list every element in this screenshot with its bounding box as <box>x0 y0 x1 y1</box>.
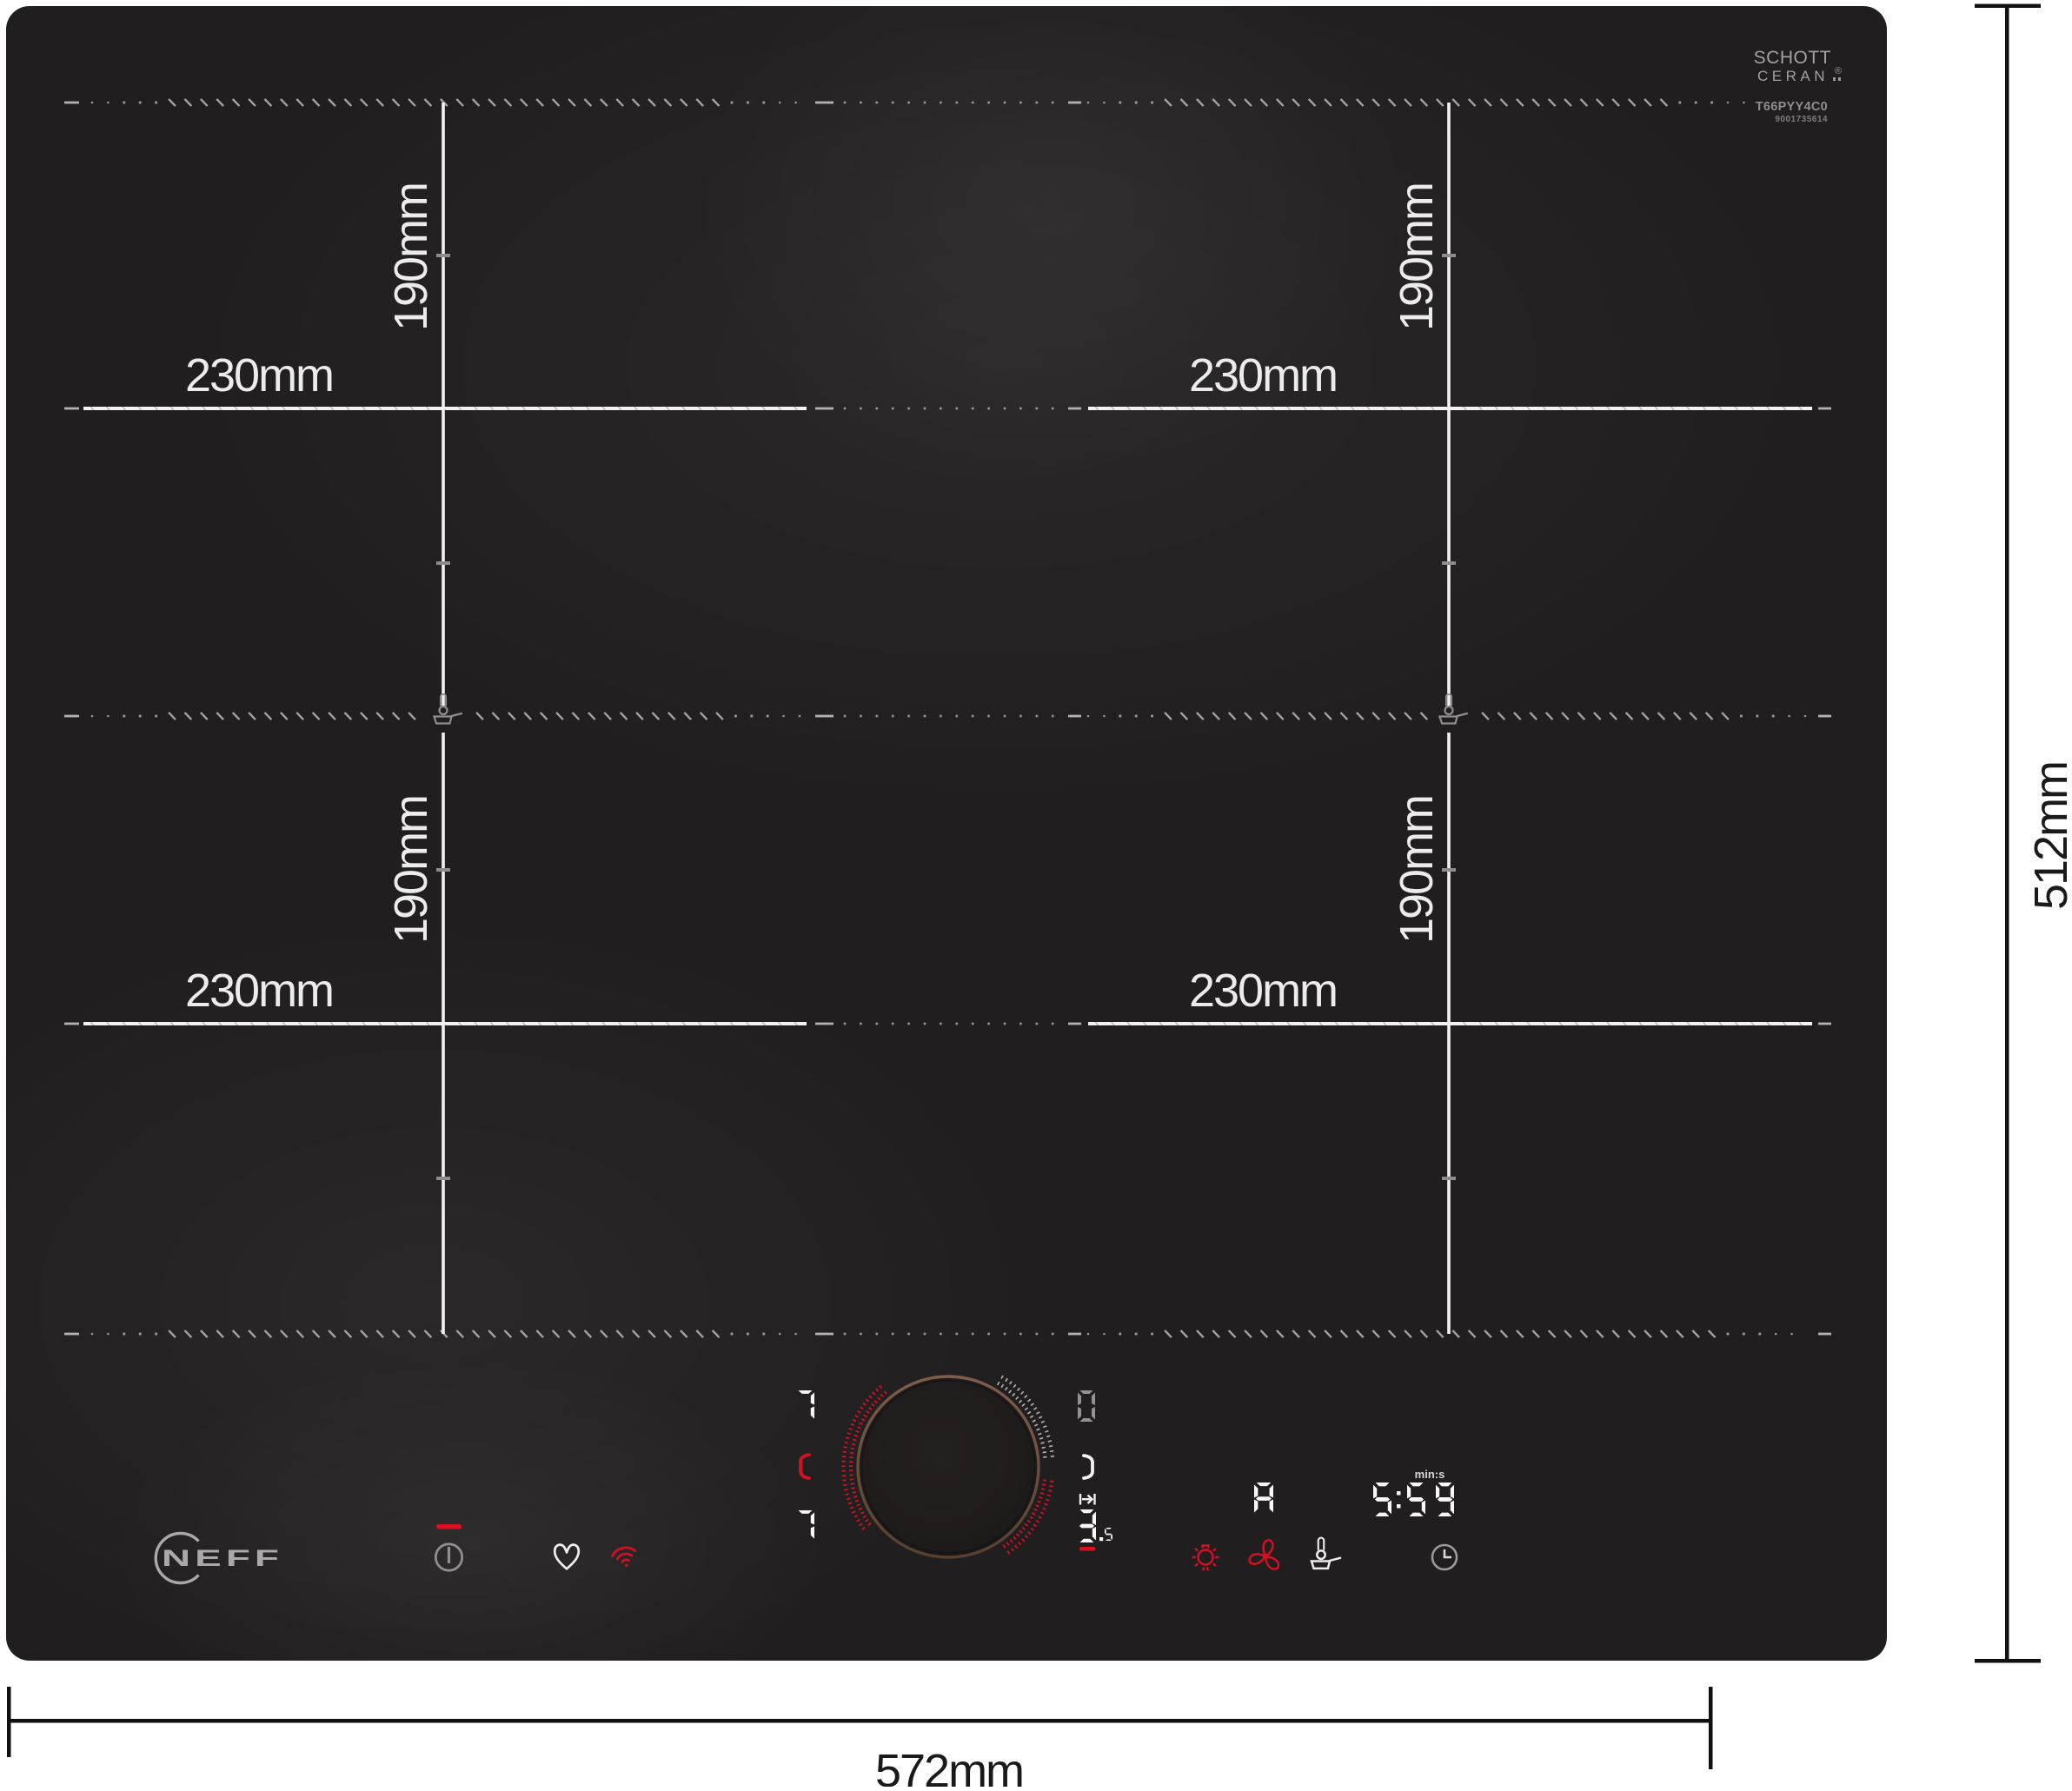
svg-text:T66PYY4C0: T66PYY4C0 <box>1756 100 1828 114</box>
svg-text:190mm: 190mm <box>385 796 437 944</box>
svg-text:190mm: 190mm <box>1391 183 1443 331</box>
svg-text:9001735614: 9001735614 <box>1775 115 1828 124</box>
svg-text:512mm: 512mm <box>2025 762 2072 910</box>
svg-text:NEFF: NEFF <box>162 1545 283 1571</box>
svg-text:CERAN: CERAN <box>1757 68 1829 84</box>
svg-text:230mm: 230mm <box>1189 965 1337 1017</box>
svg-text:230mm: 230mm <box>185 965 333 1017</box>
svg-text:572mm: 572mm <box>875 1745 1023 1787</box>
svg-text:SCHOTT: SCHOTT <box>1754 48 1831 68</box>
svg-text:190mm: 190mm <box>1391 796 1443 944</box>
svg-text:230mm: 230mm <box>185 349 333 401</box>
svg-text:230mm: 230mm <box>1189 349 1337 401</box>
svg-text:190mm: 190mm <box>385 183 437 331</box>
svg-text:min:s: min:s <box>1415 1468 1445 1481</box>
svg-text:®: ® <box>1835 66 1842 76</box>
